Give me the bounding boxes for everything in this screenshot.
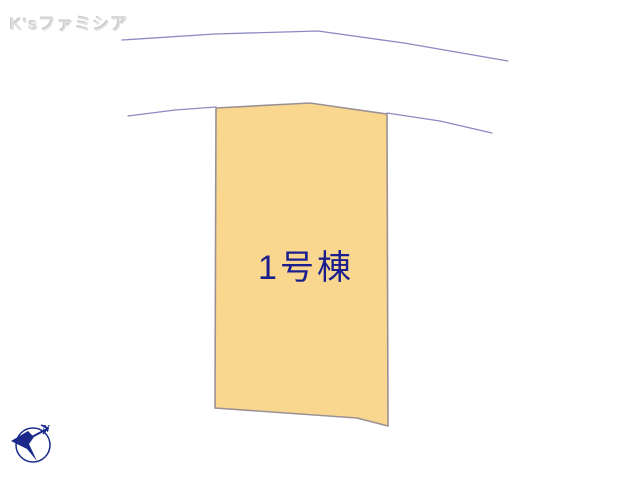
lower-road-line-right: [387, 113, 492, 133]
compass-north-label: N: [41, 423, 51, 435]
site-plan-drawing: 1号棟 N: [0, 0, 640, 480]
lot-label: 1号棟: [258, 249, 354, 287]
site-plan-canvas: K'sファミシア 1号棟 N: [0, 0, 640, 480]
lower-road-line-left: [128, 107, 216, 116]
watermark-logo: K'sファミシア: [10, 10, 129, 35]
upper-road-line: [122, 31, 508, 61]
compass: N: [11, 423, 51, 462]
